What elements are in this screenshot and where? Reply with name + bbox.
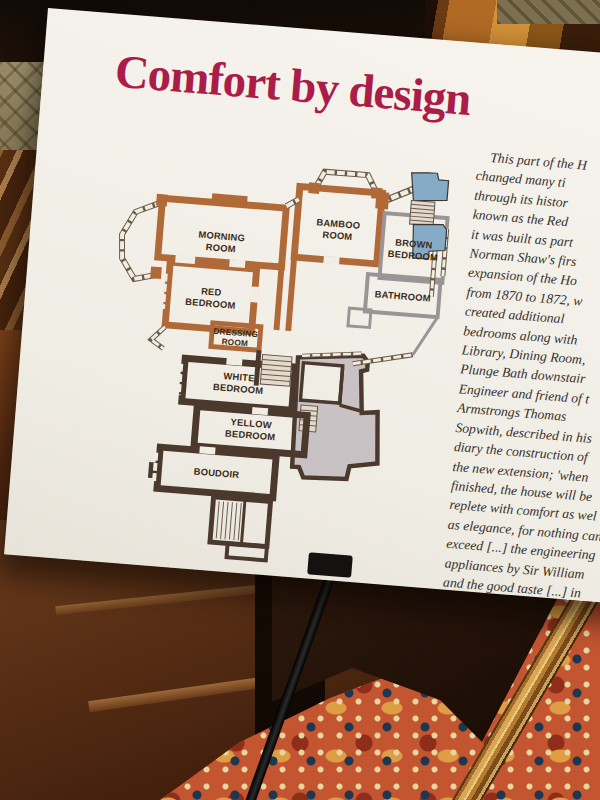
information-sign-board: Comfort by design [4,8,600,604]
label-boudoir: BOUDOIR [193,467,239,481]
easel-clip [307,552,353,577]
label-bamboo-room: ROOM [322,230,353,242]
ceiling-patch-top-right [497,0,600,24]
label-morning-room: ROOM [205,242,236,254]
label-red-bedroom: RED [201,286,222,298]
label-white-bedroom: WHITE [223,371,255,383]
floor-plan: MORNING ROOM BAMBOO ROOM BROWN BEDROOM R… [92,148,459,588]
sign-title: Comfort by design [113,44,473,126]
label-yellow-bedroom: BEDROOM [225,429,276,443]
floor-plan-svg: MORNING ROOM BAMBOO ROOM BROWN BEDROOM R… [92,148,459,588]
label-morning-room: MORNING [198,230,245,244]
label-red-bedroom: BEDROOM [185,297,236,311]
label-bathroom: BATHROOM [374,289,431,303]
label-yellow-bedroom: YELLOW [230,417,272,430]
label-brown-bedroom: BROWN [395,238,433,251]
body-text: This part of the Hchanged many tithrough… [442,147,600,612]
orange-walls [113,156,415,368]
